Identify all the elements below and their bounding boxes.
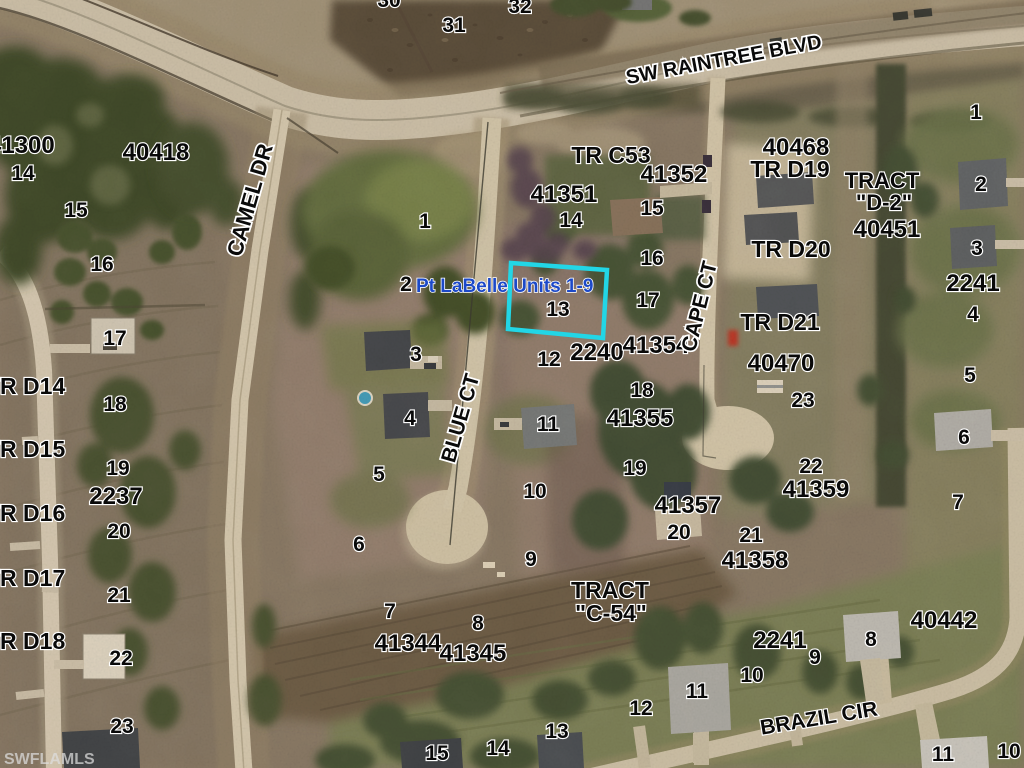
svg-text:8: 8 <box>472 612 484 635</box>
svg-text:2237: 2237 <box>89 483 142 510</box>
svg-text:13: 13 <box>546 298 569 321</box>
svg-text:TR D17: TR D17 <box>0 565 65 591</box>
svg-text:TR D15: TR D15 <box>0 436 65 462</box>
svg-text:15: 15 <box>640 197 664 220</box>
svg-text:2241: 2241 <box>946 270 999 297</box>
svg-text:32: 32 <box>508 0 531 18</box>
svg-text:41351: 41351 <box>531 181 598 208</box>
svg-text:8: 8 <box>865 628 877 651</box>
svg-text:30: 30 <box>377 0 400 12</box>
svg-text:TR D18: TR D18 <box>0 628 65 654</box>
svg-text:11: 11 <box>537 413 560 436</box>
svg-text:12: 12 <box>629 697 652 720</box>
svg-text:TR D14: TR D14 <box>0 373 65 399</box>
svg-text:40418: 40418 <box>123 139 190 166</box>
svg-text:TR D19: TR D19 <box>750 156 829 182</box>
svg-text:3: 3 <box>410 343 422 366</box>
svg-text:11: 11 <box>932 743 955 766</box>
svg-text:TR D21: TR D21 <box>740 309 819 335</box>
svg-text:41355: 41355 <box>607 405 674 432</box>
svg-text:40451: 40451 <box>854 216 921 243</box>
svg-text:14: 14 <box>559 209 583 232</box>
svg-text:1: 1 <box>970 101 982 124</box>
svg-text:13: 13 <box>545 720 568 743</box>
svg-text:17: 17 <box>103 327 126 350</box>
svg-text:18: 18 <box>103 393 127 416</box>
svg-text:2241: 2241 <box>753 627 806 654</box>
svg-text:6: 6 <box>958 426 970 449</box>
svg-text:2240: 2240 <box>570 339 623 366</box>
svg-text:41300: 41300 <box>0 132 55 159</box>
svg-text:15: 15 <box>425 742 449 765</box>
svg-text:4: 4 <box>404 407 416 430</box>
svg-text:10: 10 <box>740 664 763 687</box>
svg-text:10: 10 <box>997 740 1020 763</box>
svg-text:19: 19 <box>623 457 646 480</box>
svg-text:41358: 41358 <box>722 547 789 574</box>
svg-text:17: 17 <box>636 289 659 312</box>
svg-text:7: 7 <box>952 491 964 514</box>
svg-text:TR D20: TR D20 <box>751 236 830 262</box>
svg-text:15: 15 <box>64 199 88 222</box>
svg-text:20: 20 <box>107 520 130 543</box>
svg-text:14: 14 <box>486 737 510 760</box>
svg-text:20: 20 <box>667 521 690 544</box>
svg-text:23: 23 <box>791 389 814 412</box>
svg-text:Pt LaBelle Units 1-9: Pt LaBelle Units 1-9 <box>416 276 593 297</box>
svg-text:14: 14 <box>11 162 35 185</box>
svg-text:SWFLAMLS: SWFLAMLS <box>4 751 95 768</box>
svg-text:TR D16: TR D16 <box>0 500 65 526</box>
svg-text:TR C53: TR C53 <box>571 142 650 168</box>
svg-text:9: 9 <box>809 646 821 669</box>
svg-text:22: 22 <box>799 455 822 478</box>
svg-text:11: 11 <box>686 680 709 703</box>
svg-text:3: 3 <box>971 237 983 260</box>
svg-text:"D-2": "D-2" <box>856 190 912 215</box>
svg-text:40442: 40442 <box>911 607 978 634</box>
svg-text:18: 18 <box>630 379 654 402</box>
svg-text:10: 10 <box>523 480 546 503</box>
svg-text:21: 21 <box>739 524 763 547</box>
svg-text:12: 12 <box>537 348 560 371</box>
svg-text:31: 31 <box>442 14 466 37</box>
svg-text:19: 19 <box>106 457 129 480</box>
svg-text:41345: 41345 <box>440 640 507 667</box>
svg-text:2: 2 <box>975 173 987 196</box>
svg-text:2: 2 <box>400 273 412 296</box>
svg-text:23: 23 <box>110 715 133 738</box>
svg-text:40470: 40470 <box>748 350 815 377</box>
svg-text:"C-54": "C-54" <box>575 600 647 626</box>
svg-text:1: 1 <box>419 210 431 233</box>
svg-text:4: 4 <box>967 303 979 326</box>
svg-text:16: 16 <box>90 253 113 276</box>
svg-text:6: 6 <box>353 533 365 556</box>
svg-text:41344: 41344 <box>375 630 442 657</box>
svg-text:5: 5 <box>373 463 385 486</box>
svg-text:21: 21 <box>107 584 131 607</box>
svg-text:9: 9 <box>525 548 537 571</box>
svg-text:41357: 41357 <box>655 492 722 519</box>
svg-text:41352: 41352 <box>641 161 708 188</box>
svg-text:7: 7 <box>384 600 396 623</box>
svg-text:5: 5 <box>964 364 976 387</box>
svg-text:41359: 41359 <box>783 476 850 503</box>
svg-text:22: 22 <box>109 647 132 670</box>
svg-text:16: 16 <box>640 247 663 270</box>
